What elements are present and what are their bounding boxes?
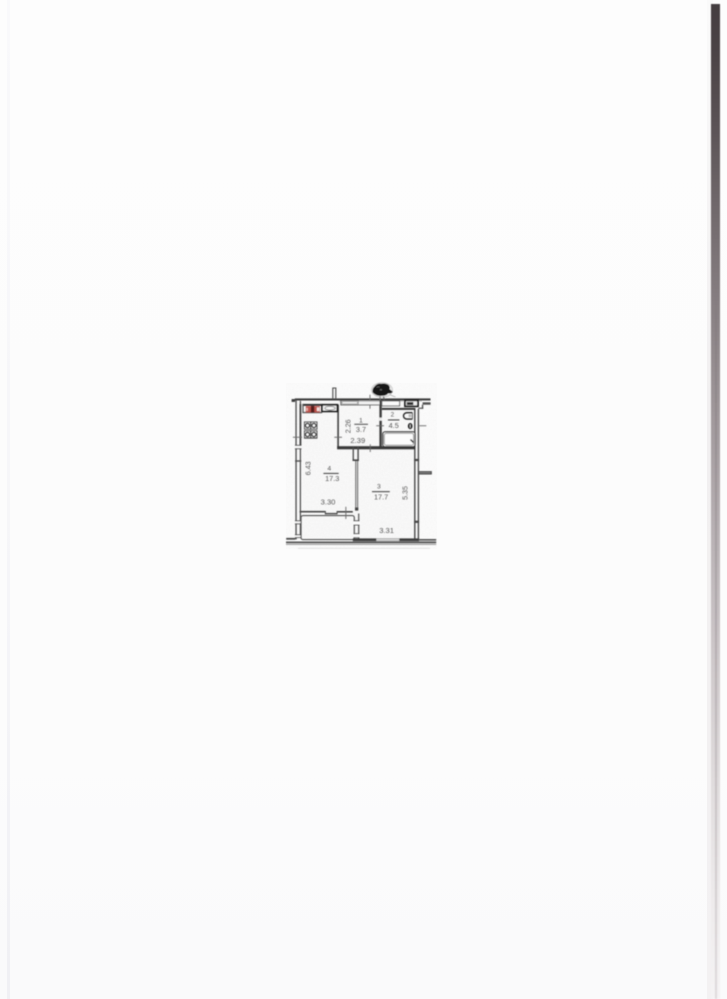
svg-text:3: 3: [377, 484, 381, 491]
svg-text:3.30: 3.30: [321, 498, 336, 507]
svg-text:17.3: 17.3: [325, 474, 339, 483]
svg-text:6.43: 6.43: [305, 461, 313, 475]
svg-text:5.35: 5.35: [402, 486, 410, 500]
svg-text:3.7: 3.7: [356, 425, 366, 434]
svg-text:1: 1: [359, 417, 363, 424]
svg-text:4.5: 4.5: [389, 421, 399, 430]
svg-text:2.26: 2.26: [345, 419, 353, 433]
svg-text:3.31: 3.31: [379, 526, 394, 535]
svg-text:4: 4: [327, 466, 331, 473]
svg-text:17.7: 17.7: [374, 492, 388, 501]
svg-text:2: 2: [391, 411, 395, 418]
svg-text:2.39: 2.39: [350, 436, 365, 445]
